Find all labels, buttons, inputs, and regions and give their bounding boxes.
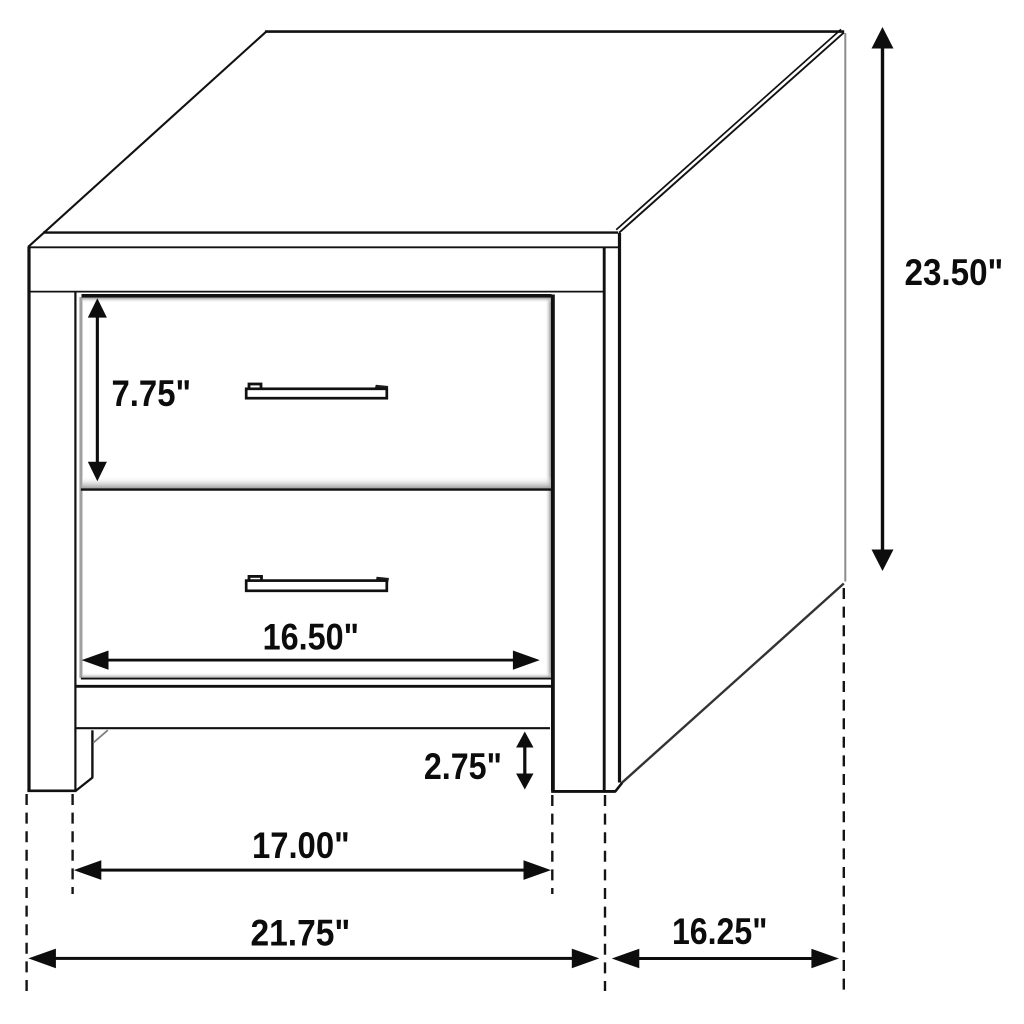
- svg-text:17.00": 17.00": [252, 825, 350, 866]
- svg-text:23.50": 23.50": [905, 252, 1004, 293]
- svg-text:16.50": 16.50": [263, 617, 359, 658]
- svg-text:7.75": 7.75": [112, 373, 192, 414]
- svg-text:21.75": 21.75": [251, 912, 351, 953]
- svg-text:2.75": 2.75": [424, 746, 502, 787]
- svg-text:16.25": 16.25": [672, 911, 768, 952]
